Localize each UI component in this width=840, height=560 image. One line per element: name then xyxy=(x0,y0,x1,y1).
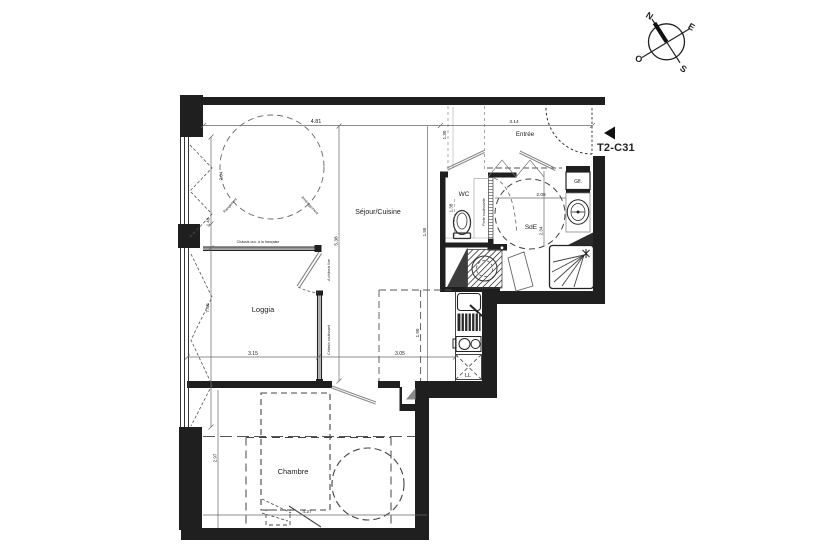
svg-text:A châssis fixe: A châssis fixe xyxy=(327,259,331,281)
svg-text:2.97: 2.97 xyxy=(213,453,218,462)
svg-text:5.38: 5.38 xyxy=(334,236,340,246)
svg-text:1.95: 1.95 xyxy=(422,227,427,236)
svg-text:3.15: 3.15 xyxy=(248,351,258,357)
svg-text:S: S xyxy=(678,63,688,75)
svg-text:2.34: 2.34 xyxy=(539,226,544,235)
svg-text:2.04: 2.04 xyxy=(219,171,224,180)
svg-text:1.90: 1.90 xyxy=(415,328,420,337)
svg-text:E: E xyxy=(686,21,696,33)
svg-text:Gfl.: Gfl. xyxy=(574,179,582,185)
svg-text:Châssis coulissant: Châssis coulissant xyxy=(327,325,331,355)
svg-text:Aménagement: Aménagement xyxy=(300,195,319,215)
svg-text:3.05: 3.05 xyxy=(395,351,405,357)
svg-text:SdE: SdE xyxy=(525,224,538,231)
svg-text:WC: WC xyxy=(459,191,470,198)
svg-text:O: O xyxy=(634,53,643,64)
svg-text:Porte coulissante: Porte coulissante xyxy=(482,198,486,226)
svg-text:Châssis ouv. à la française: Châssis ouv. à la française xyxy=(237,240,280,244)
svg-text:LL: LL xyxy=(465,373,471,379)
svg-text:1.30: 1.30 xyxy=(442,130,447,139)
svg-text:2.08: 2.08 xyxy=(536,192,546,198)
svg-text:Loggia: Loggia xyxy=(252,305,275,314)
svg-text:4.81: 4.81 xyxy=(311,119,322,125)
svg-text:1.40: 1.40 xyxy=(206,217,211,226)
svg-text:3.14: 3.14 xyxy=(509,119,519,125)
svg-text:Séjour/Cuisine: Séjour/Cuisine xyxy=(355,209,401,216)
svg-text:Entrée: Entrée xyxy=(516,131,535,138)
svg-text:Rangement: Rangement xyxy=(223,197,238,213)
svg-text:T2-C31: T2-C31 xyxy=(597,142,635,154)
svg-text:1.38: 1.38 xyxy=(449,203,454,212)
svg-text:4.27: 4.27 xyxy=(302,509,312,515)
svg-text:Chambre: Chambre xyxy=(278,467,309,476)
svg-text:7.65: 7.65 xyxy=(205,303,211,313)
